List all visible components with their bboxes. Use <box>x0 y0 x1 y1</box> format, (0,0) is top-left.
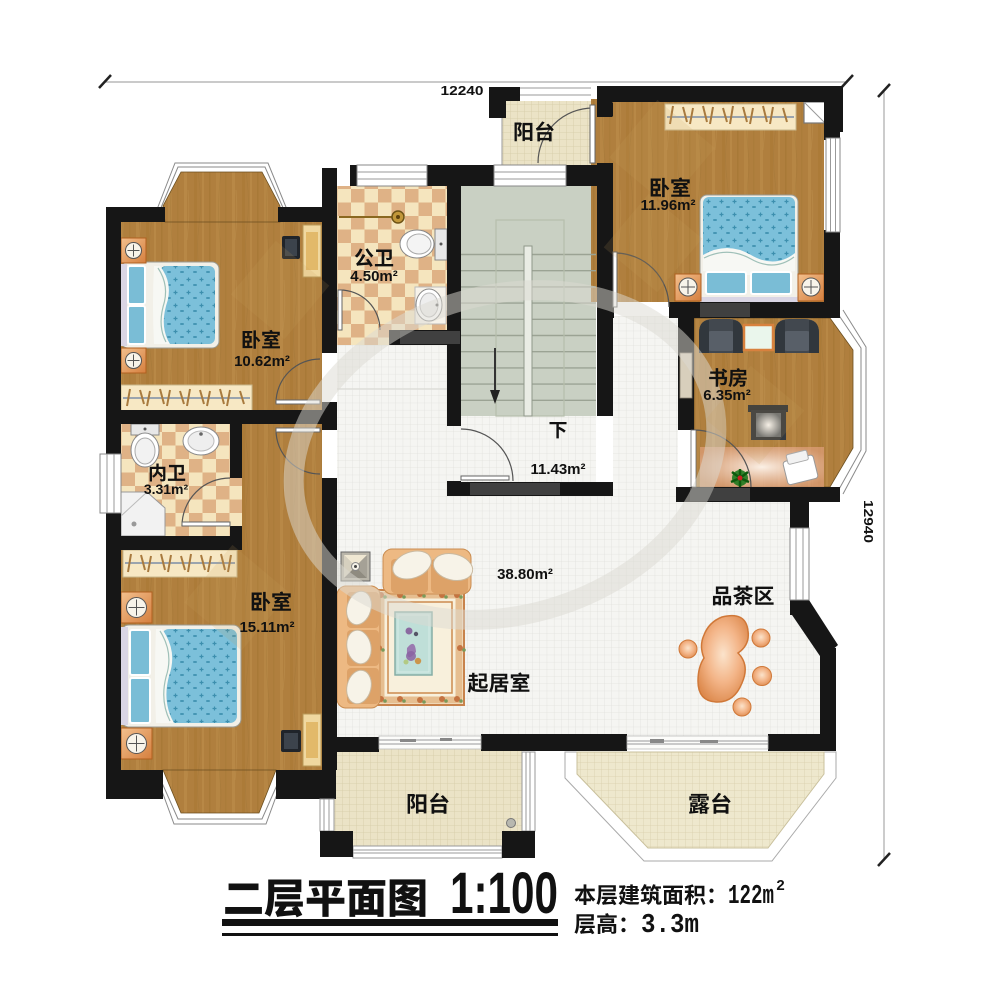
svg-text:4.50m²: 4.50m² <box>350 268 398 285</box>
svg-text:122m: 122m <box>728 882 774 912</box>
svg-text:1:100: 1:100 <box>450 861 558 926</box>
svg-text:10.62m²: 10.62m² <box>234 353 290 370</box>
svg-text:3.31m²: 3.31m² <box>144 481 189 497</box>
svg-text:12240: 12240 <box>441 84 484 98</box>
svg-text:12940: 12940 <box>861 500 875 543</box>
svg-text:11.96m²: 11.96m² <box>640 197 695 214</box>
svg-text:38.80m²: 38.80m² <box>497 566 553 583</box>
svg-text:11.43m²: 11.43m² <box>530 461 585 478</box>
svg-text:3.3m: 3.3m <box>641 911 699 941</box>
svg-text:15.11m²: 15.11m² <box>239 619 294 636</box>
svg-text:2: 2 <box>776 878 785 895</box>
svg-text:6.35m²: 6.35m² <box>703 387 751 404</box>
